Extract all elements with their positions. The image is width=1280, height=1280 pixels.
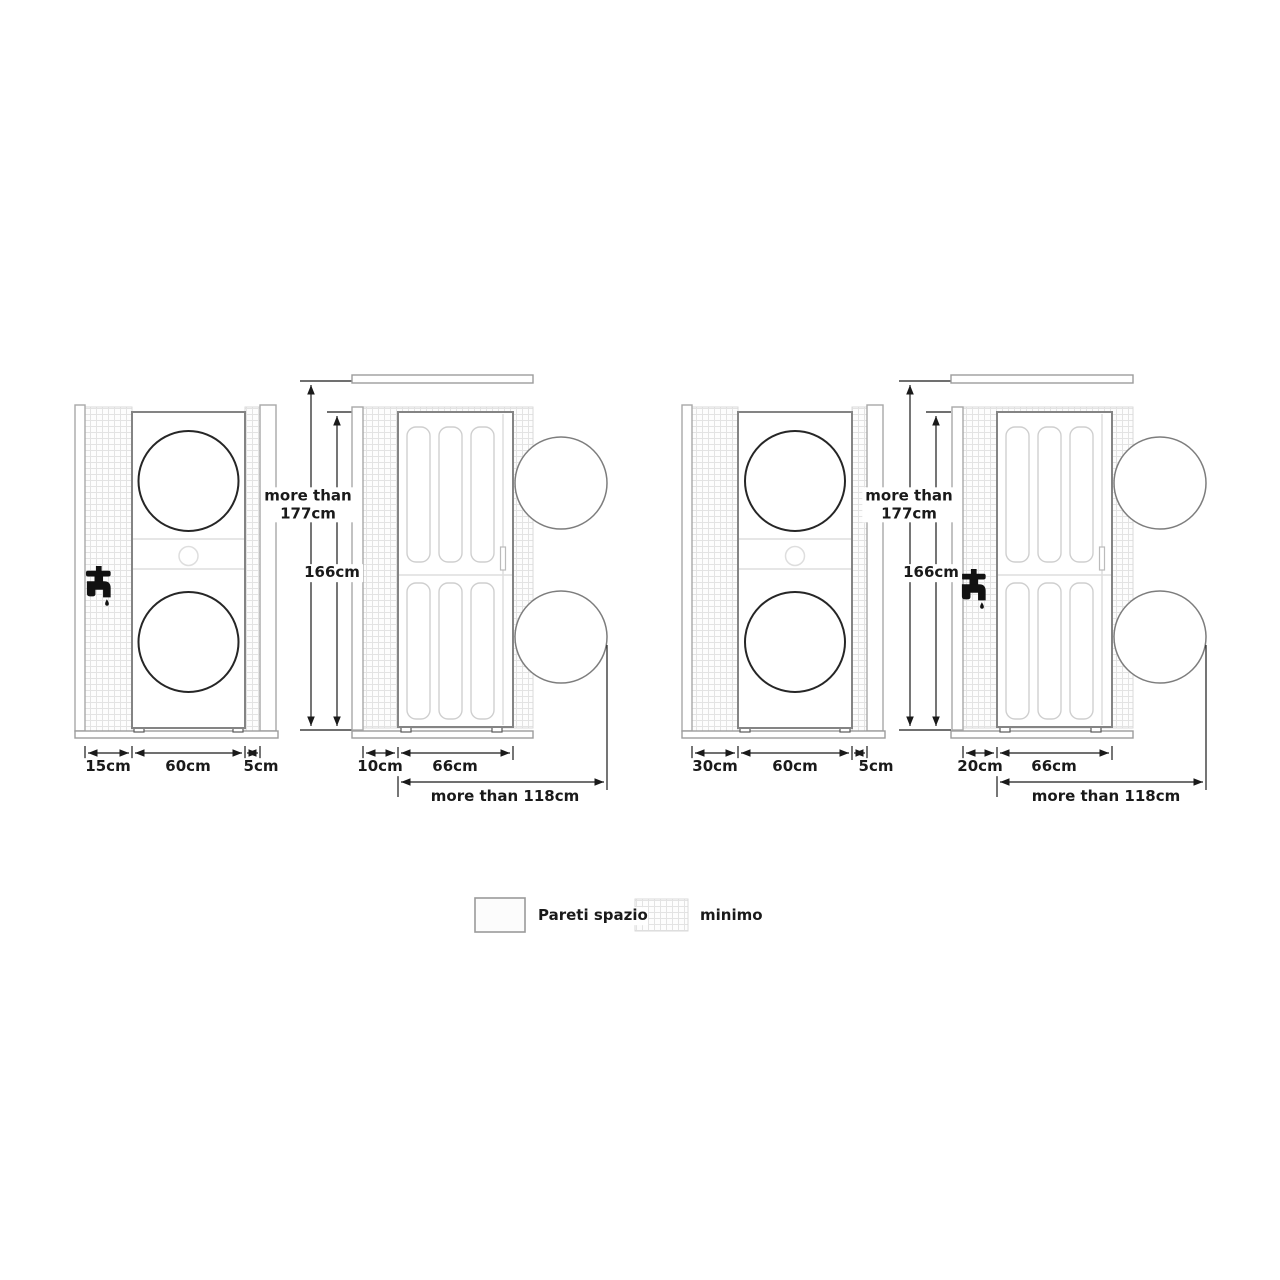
side-view [951,375,1206,797]
dim-label-left-gap: 15cm [82,758,133,776]
washtower-unit-side [398,412,513,727]
minimum-space-right [245,407,260,731]
minimum-space-left [85,407,132,731]
dim-label-left-gap: 30cm [689,758,740,776]
dim-label-depth: 66cm [429,758,480,776]
installation-clearance-diagram: 15cm 60cm 5cm more than 177cm 166cm 10cm… [0,0,1280,1280]
ceiling [352,375,533,383]
door-handle [1100,547,1105,570]
dim-label-depth: 66cm [1028,758,1079,776]
legend-wall-swatch [475,898,525,932]
dim-label-right-gap: 5cm [856,758,897,776]
floor [682,731,885,738]
floor [352,731,533,738]
dim-label-width: 60cm [162,758,213,776]
dim-label-front-clearance: more than 118cm [428,788,582,806]
diagram-right [682,375,1206,797]
washtower-unit-side [997,412,1112,727]
diagram-left [75,375,607,797]
minimum-space-right [852,407,867,731]
door-swing-top [515,437,607,529]
door-swing-bottom [515,591,607,683]
dim-label-unit-height: 166cm [900,564,962,582]
legend-minimum-label: minimo [700,907,763,925]
legend-wall-label: Pareti spazio [538,907,648,925]
front-view [682,405,885,760]
dim-label-front-clearance: more than 118cm [1029,788,1183,806]
floor [951,731,1133,738]
dim-label-ceiling-height: more than 177cm [261,487,354,522]
door-handle [501,547,506,570]
washtower-unit [738,412,852,728]
dim-label-back-gap: 10cm [354,758,405,776]
door-swing-top [1114,437,1206,529]
ceiling [951,375,1133,383]
left-wall [75,405,85,731]
height-dimensions [300,381,352,730]
right-wall [260,405,276,731]
dim-label-right-gap: 5cm [241,758,282,776]
door-swing-bottom [1114,591,1206,683]
washtower-unit [132,412,245,728]
right-wall [867,405,883,731]
dim-label-unit-height: 166cm [301,564,363,582]
minimum-space-left [692,407,738,731]
dim-label-width: 60cm [769,758,820,776]
front-view [75,405,278,760]
diagram-canvas [0,0,1280,1280]
side-view [352,375,607,797]
dim-label-back-gap: 20cm [954,758,1005,776]
dim-label-ceiling-height: more than 177cm [862,487,955,522]
floor [75,731,278,738]
left-wall [682,405,692,731]
height-dimensions [899,381,951,730]
